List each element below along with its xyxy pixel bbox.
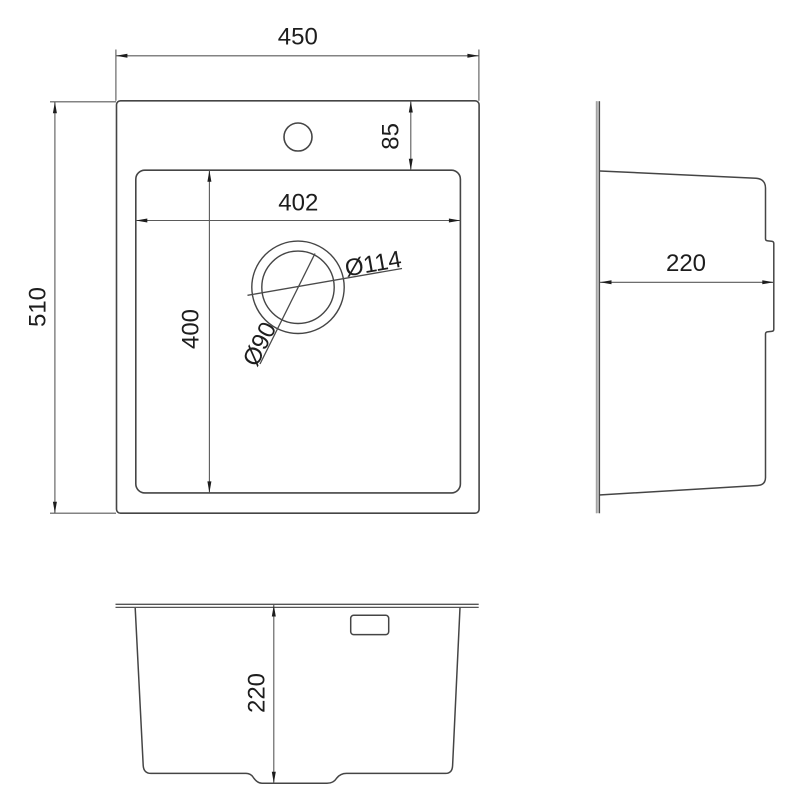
svg-text:510: 510: [25, 287, 52, 327]
svg-text:402: 402: [278, 190, 318, 217]
svg-text:85: 85: [378, 123, 405, 150]
svg-text:450: 450: [278, 24, 318, 51]
svg-text:400: 400: [178, 309, 205, 349]
svg-text:220: 220: [666, 250, 706, 277]
svg-text:220: 220: [244, 673, 271, 713]
